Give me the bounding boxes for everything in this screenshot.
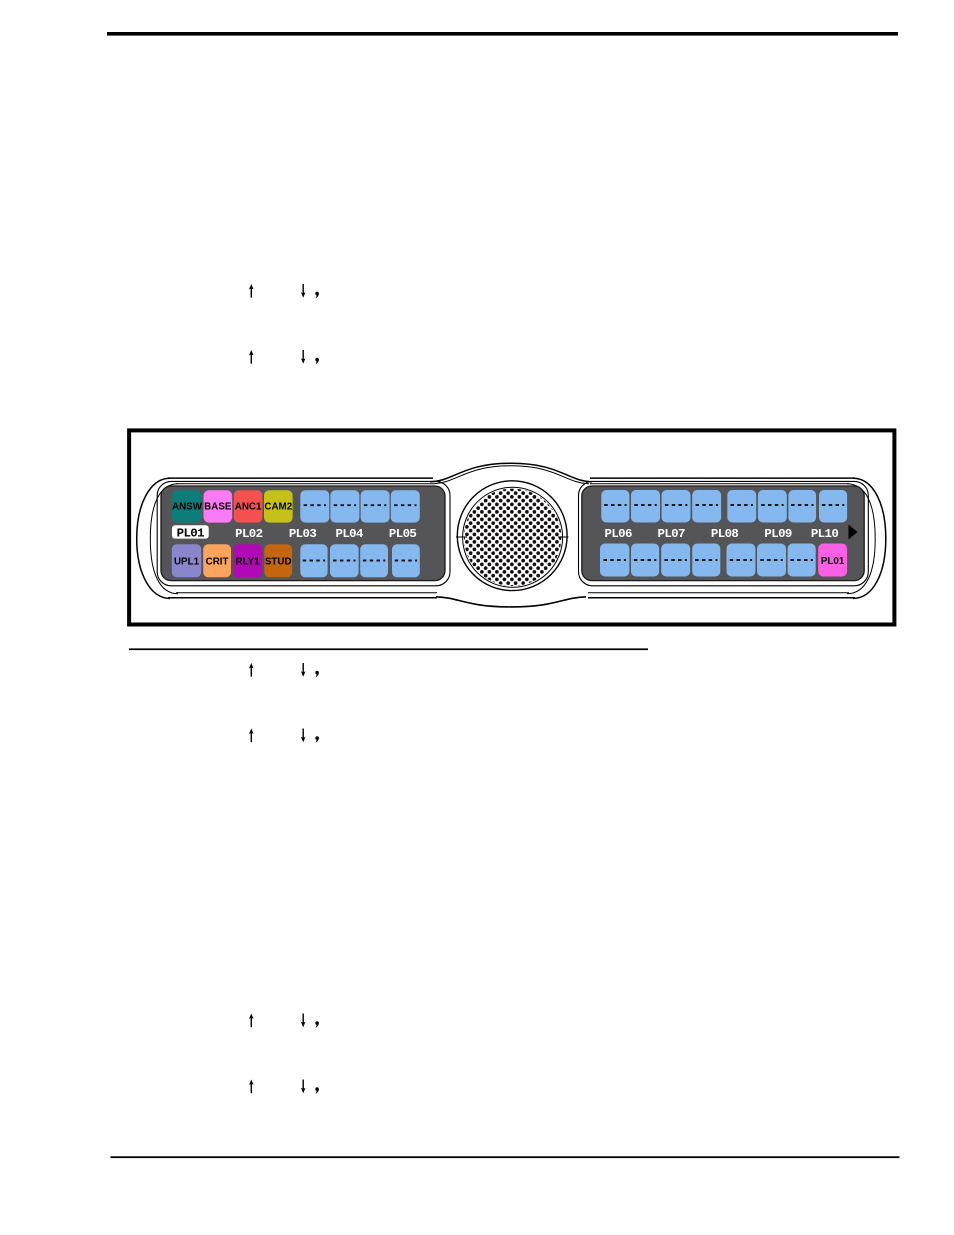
svg-text:PL02: PL02 xyxy=(235,527,263,541)
svg-text:STUD: STUD xyxy=(265,557,292,568)
svg-text:ANC1: ANC1 xyxy=(235,502,262,513)
svg-text:PL09: PL09 xyxy=(764,527,792,541)
svg-text:PL06: PL06 xyxy=(605,527,633,541)
svg-text:ANSW: ANSW xyxy=(172,502,203,513)
svg-text:PL10: PL10 xyxy=(811,527,839,541)
svg-text:PL01: PL01 xyxy=(821,556,845,567)
svg-text:CRIT: CRIT xyxy=(206,557,229,568)
svg-text:PL08: PL08 xyxy=(711,527,739,541)
svg-text:PL05: PL05 xyxy=(389,527,417,541)
svg-text:PL03: PL03 xyxy=(289,527,317,541)
svg-text:BASE: BASE xyxy=(204,502,232,513)
svg-text:RLY1: RLY1 xyxy=(236,557,261,568)
svg-text:CAM2: CAM2 xyxy=(264,502,292,513)
svg-text:PL07: PL07 xyxy=(658,527,686,541)
svg-text:UPL1: UPL1 xyxy=(174,557,200,568)
svg-text:PL01: PL01 xyxy=(177,526,205,540)
svg-text:PL04: PL04 xyxy=(336,527,365,541)
